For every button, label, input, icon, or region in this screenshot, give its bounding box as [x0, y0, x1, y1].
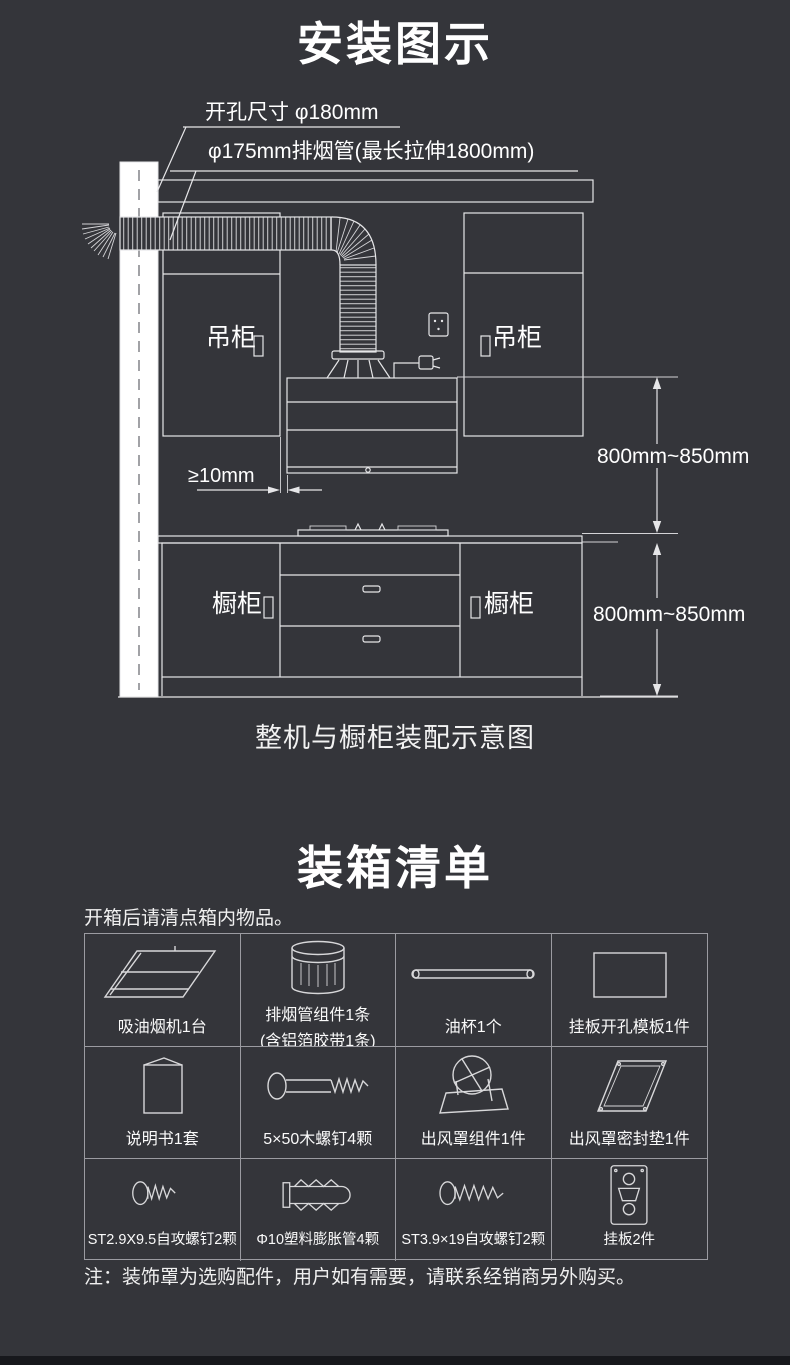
- wood-screw-icon: [241, 1047, 396, 1130]
- packing-item-manual: 说明书1套: [85, 1047, 241, 1159]
- outlet-gasket-icon: [552, 1047, 708, 1130]
- power-outlet-icon: [429, 313, 448, 336]
- oil-cup-icon: [396, 934, 551, 1018]
- installation-diagram: 开孔尺寸 φ180mm φ175mm排烟管(最长拉伸1800mm) ≥10mm …: [0, 88, 790, 716]
- packing-item-gasket: 出风罩密封垫1件: [552, 1047, 708, 1159]
- packing-item-duct: 排烟管组件1条 (含铝箔胶带1条): [241, 934, 397, 1047]
- upper-cabinet-left-label: 吊柜: [206, 324, 256, 352]
- packing-item-oil-cup: 油杯1个: [396, 934, 552, 1047]
- hole-size-label: 开孔尺寸 φ180mm: [205, 101, 378, 124]
- packing-item-range-hood: 吸油烟机1台: [85, 934, 241, 1047]
- packing-item-label: Φ10塑料膨胀管4颗: [256, 1232, 379, 1249]
- upper-height-dimension: 800mm~850mm: [597, 445, 749, 468]
- packing-item-hanging-plate: 挂板2件: [552, 1159, 708, 1261]
- packing-item-label: 说明书1套: [126, 1130, 199, 1149]
- packing-intro: 开箱后请清点箱内物品。: [84, 903, 293, 930]
- drawer-handle: [363, 636, 380, 642]
- packing-item-label: 挂板开孔模板1件: [569, 1018, 690, 1037]
- packing-item-label: 油杯1个: [445, 1018, 502, 1037]
- tapping-screw-large-icon: [396, 1159, 551, 1232]
- packing-item-label: ST2.9X9.5自攻螺钉2颗: [88, 1232, 237, 1249]
- range-hood-icon: [85, 934, 240, 1018]
- packing-item-label: 挂板2件: [603, 1232, 655, 1249]
- packing-item-large-screw: ST3.9×19自攻螺钉2颗: [396, 1159, 552, 1261]
- packing-item-wood-screw: 5×50木螺钉4颗: [241, 1047, 397, 1159]
- diagram-caption: 整机与橱柜装配示意图: [0, 716, 790, 755]
- duct-flare: [82, 224, 116, 259]
- gas-stove: [298, 524, 448, 536]
- ceiling-slab: [158, 180, 593, 202]
- base-cabinets: [162, 543, 582, 696]
- packing-item-label: ST3.9×19自攻螺钉2颗: [401, 1232, 545, 1249]
- packing-item-label: 吸油烟机1台: [118, 1018, 207, 1037]
- drawer-handle: [363, 586, 380, 592]
- cabinet-door-handle: [481, 336, 490, 356]
- manual-icon: [85, 1047, 240, 1130]
- packing-item-label: 出风罩组件1件: [421, 1130, 526, 1149]
- base-cabinet-right-label: 橱柜: [484, 590, 534, 618]
- install-section-title: 安装图示: [0, 8, 790, 74]
- hanging-plate-icon: [552, 1159, 708, 1232]
- tapping-screw-small-icon: [85, 1159, 240, 1232]
- bottom-bar: [0, 1356, 790, 1365]
- drill-template-icon: [552, 934, 708, 1018]
- packing-item-label: 5×50木螺钉4颗: [263, 1130, 372, 1149]
- packing-item-sublabel: (含铝箔胶带1条): [260, 1032, 376, 1047]
- base-cabinet-left-label: 橱柜: [212, 590, 262, 618]
- upper-cabinet-right-label: 吊柜: [492, 324, 542, 352]
- exhaust-duct-elbow: [332, 217, 376, 265]
- clearance-label: ≥10mm: [188, 465, 255, 487]
- duct-size-label: φ175mm排烟管(最长拉伸1800mm): [208, 140, 534, 163]
- packing-item-anchor: Φ10塑料膨胀管4颗: [241, 1159, 397, 1261]
- power-plug: [394, 356, 440, 378]
- packing-note: 注：装饰罩为选购配件，用户如有需要，请联系经销商另外购买。: [84, 1262, 635, 1289]
- packing-item-outlet-cover: 出风罩组件1件: [396, 1047, 552, 1159]
- countertop: [158, 536, 582, 543]
- packing-item-label: 排烟管组件1条: [265, 1006, 370, 1025]
- packing-section-title: 装箱清单: [0, 832, 790, 898]
- packing-item-label: 出风罩密封垫1件: [569, 1130, 690, 1149]
- lower-height-dimension: 800mm~850mm: [593, 603, 745, 626]
- packing-list-table: 吸油烟机1台 排烟管组件1条 (含铝箔胶带1条) 油杯1个: [84, 933, 708, 1260]
- range-hood-body: [287, 378, 457, 473]
- exhaust-duct-vertical: [340, 265, 376, 352]
- packing-item-template: 挂板开孔模板1件: [552, 934, 708, 1047]
- cabinet-door-handle: [471, 597, 480, 618]
- packing-item-small-screw: ST2.9X9.5自攻螺钉2颗: [85, 1159, 241, 1261]
- duct-collar: [327, 351, 390, 378]
- exhaust-duct-icon: [241, 934, 396, 1006]
- cabinet-door-handle: [264, 597, 273, 618]
- outlet-cover-icon: [396, 1047, 551, 1130]
- exhaust-duct-horizontal: [120, 217, 332, 250]
- expansion-anchor-icon: [241, 1159, 396, 1232]
